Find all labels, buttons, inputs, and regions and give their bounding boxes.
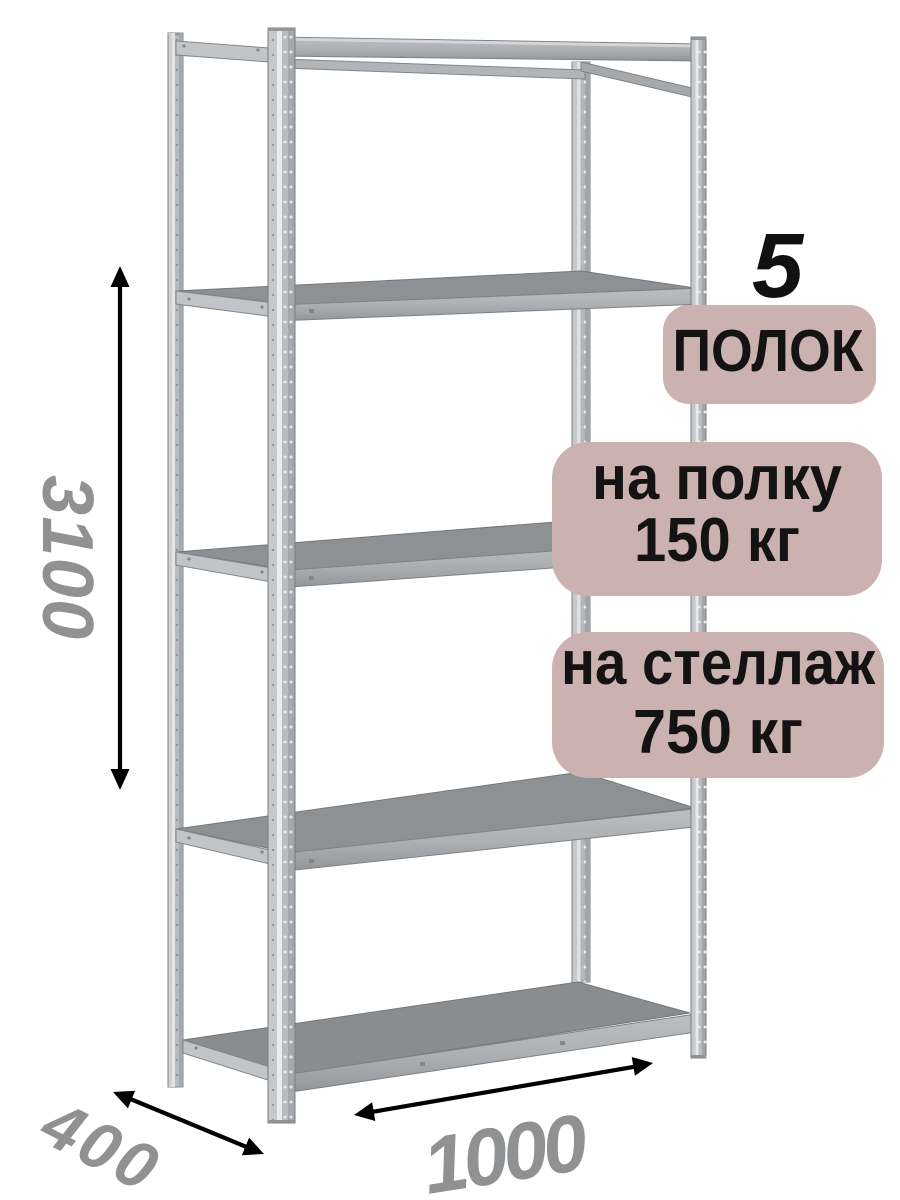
svg-text:400: 400 [29, 1085, 170, 1200]
svg-text:3100: 3100 [27, 475, 107, 639]
svg-text:5: 5 [752, 215, 805, 317]
svg-text:1000: 1000 [417, 1097, 594, 1200]
svg-text:150 кг: 150 кг [634, 506, 800, 575]
svg-text:на стеллаж: на стеллаж [561, 629, 876, 698]
svg-text:на полку: на полку [592, 444, 842, 513]
svg-text:ПОЛОК: ПОЛОК [673, 318, 865, 384]
svg-text:750 кг: 750 кг [633, 698, 803, 767]
